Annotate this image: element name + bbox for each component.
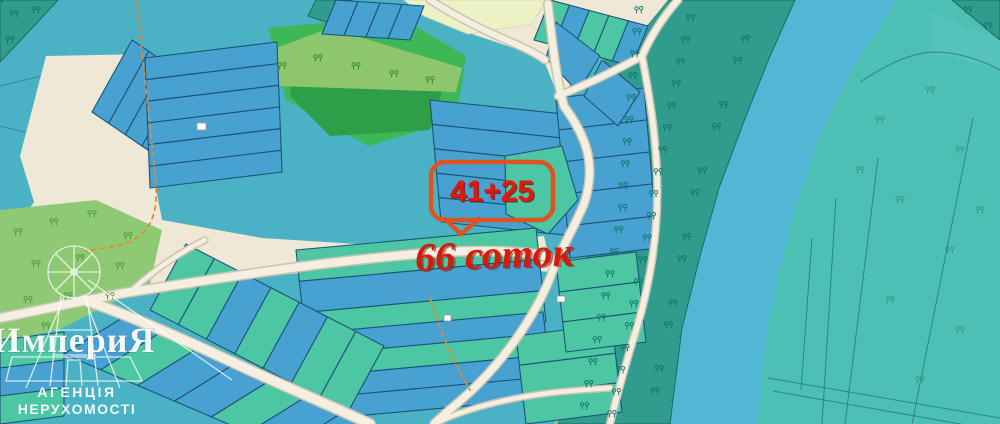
area-size-label: 66 соток 66 соток bbox=[414, 229, 577, 281]
map-screenshot: ИмпериЯ АГЕНЦІЯ НЕРУХОМОСТІ 41+25 41+25 … bbox=[0, 0, 1000, 424]
callout-label: 41+25 bbox=[450, 175, 534, 208]
watermark-tagline-2: НЕРУХОМОСТІ bbox=[18, 401, 136, 417]
size-label: 66 соток bbox=[414, 229, 575, 280]
watermark-brand: ИмпериЯ bbox=[0, 320, 156, 360]
map-canvas[interactable]: ИмпериЯ АГЕНЦІЯ НЕРУХОМОСТІ 41+25 41+25 … bbox=[0, 0, 1000, 424]
watermark-tagline-1: АГЕНЦІЯ bbox=[37, 384, 116, 400]
